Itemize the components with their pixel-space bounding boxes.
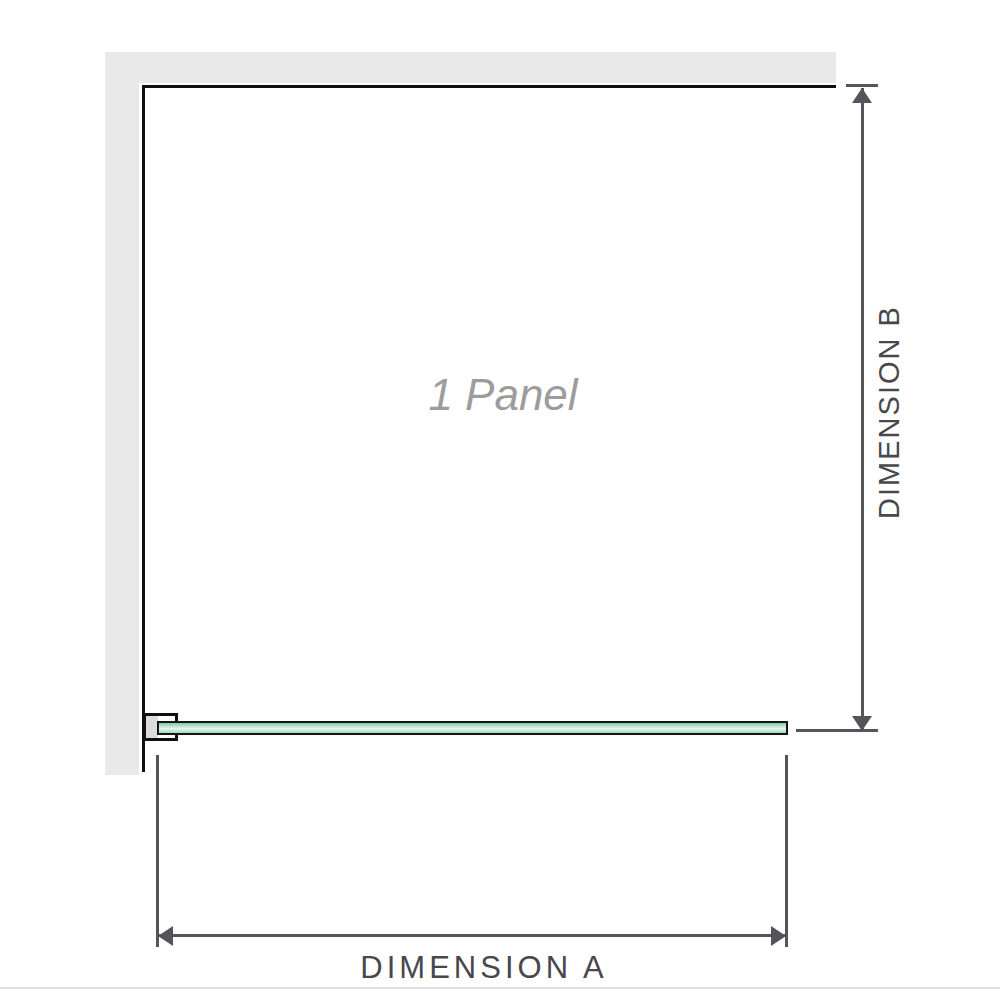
panel-count-watermark: 1 Panel (353, 370, 653, 420)
wall-left (105, 52, 139, 775)
shower-panel-diagram: DIMENSION B DIMENSION A 1 Panel (0, 0, 1000, 1000)
dimension-b-line (861, 88, 864, 731)
dimension-a-right-extension (785, 755, 788, 947)
dimension-a-label: DIMENSION A (334, 950, 634, 986)
dimension-a-line (158, 934, 786, 937)
dimension-b-label: DIMENSION B (873, 282, 903, 542)
arrow-left-icon (158, 926, 173, 946)
arrow-right-icon (771, 926, 786, 946)
wall-face-line-left (142, 85, 145, 772)
arrow-up-icon (852, 88, 872, 103)
wall-face-line-top (142, 85, 836, 88)
dimension-a-left-extension (156, 755, 159, 947)
bottom-separator (0, 987, 1000, 989)
wall-top (105, 52, 836, 83)
glass-panel (157, 721, 788, 735)
dimension-b-top-tick (846, 84, 878, 87)
dimension-b-bottom-tick (796, 729, 878, 732)
